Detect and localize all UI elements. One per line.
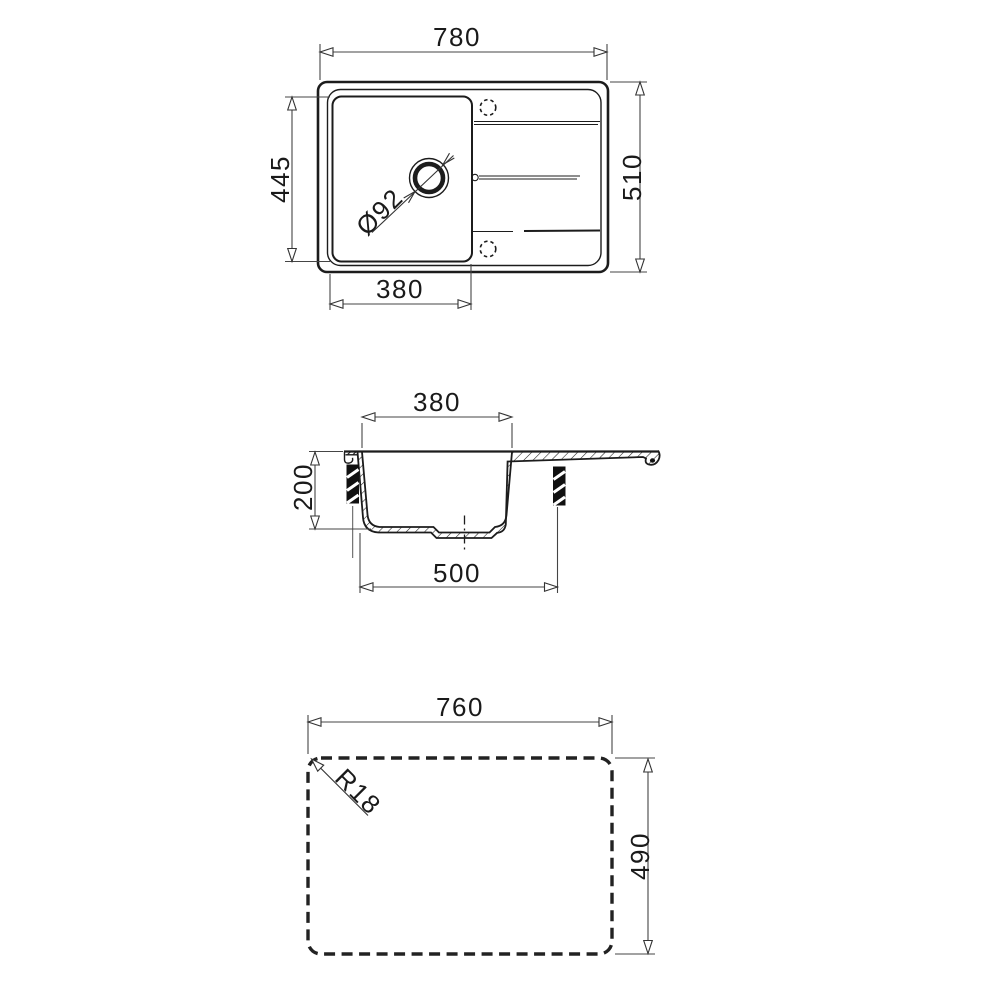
arrow-right-icon	[458, 300, 471, 309]
arrow-right-icon	[499, 413, 512, 422]
dim-label-510: 510	[617, 153, 647, 201]
arrow-down-icon	[644, 941, 653, 954]
dim-label-380-top: 380	[376, 274, 424, 304]
drawing-canvas: Ø92 780	[0, 0, 1000, 1000]
dim-label-760: 760	[436, 692, 484, 722]
dim-490: 490	[615, 758, 655, 954]
arrow-left-icon	[320, 48, 333, 57]
drain-outlet: Ø92	[350, 153, 454, 241]
dim-label-490: 490	[625, 832, 655, 880]
dim-780: 780	[320, 22, 607, 80]
arrow-left-icon	[308, 718, 321, 727]
arrow-left-icon	[330, 300, 343, 309]
dim-label-drain: Ø92	[350, 182, 409, 241]
arrow-upper-icon	[443, 153, 454, 164]
dim-r18: R18	[312, 759, 388, 821]
dim-label-500: 500	[433, 558, 481, 588]
dim-380-section: 380	[362, 387, 512, 448]
arrow-down-icon	[311, 516, 320, 529]
dim-label-200: 200	[288, 463, 318, 511]
arrow-up-icon	[636, 82, 645, 95]
arrow-up-icon	[288, 97, 297, 110]
arrow-left-icon	[360, 583, 373, 592]
dim-label-r18: R18	[329, 763, 387, 821]
tap-hole-top	[480, 100, 496, 116]
arrow-right-icon	[599, 718, 612, 727]
dim-445: 445	[265, 97, 330, 262]
dim-510: 510	[610, 82, 647, 272]
arrow-down-icon	[288, 249, 297, 262]
arrow-right-icon	[594, 48, 607, 57]
top-view: Ø92 780	[265, 22, 647, 310]
sink-outer-edge	[318, 82, 608, 272]
dim-500: 500	[360, 507, 558, 593]
arrow-up-icon	[644, 759, 653, 772]
drip-edge-notch	[650, 458, 655, 462]
dim-760: 760	[308, 692, 612, 754]
dim-label-445: 445	[265, 155, 295, 203]
mounting-clip-left	[347, 465, 359, 558]
tap-hole-bottom	[480, 241, 496, 257]
bowl-inner-profile	[362, 452, 512, 533]
arrow-left-icon	[362, 413, 375, 422]
drawing-page: Ø92 780	[0, 0, 1000, 1000]
drainer-grooves	[472, 122, 600, 232]
arrow-right-icon	[545, 583, 558, 592]
dim-label-780: 780	[433, 22, 481, 52]
bowl-outline	[333, 97, 473, 262]
mounting-clip-right	[554, 467, 566, 505]
dim-label-380-section: 380	[413, 387, 461, 417]
cutout-view: 760 490 R18	[308, 692, 655, 954]
section-view: 380 200 500	[288, 387, 660, 593]
arrow-down-icon	[636, 259, 645, 272]
